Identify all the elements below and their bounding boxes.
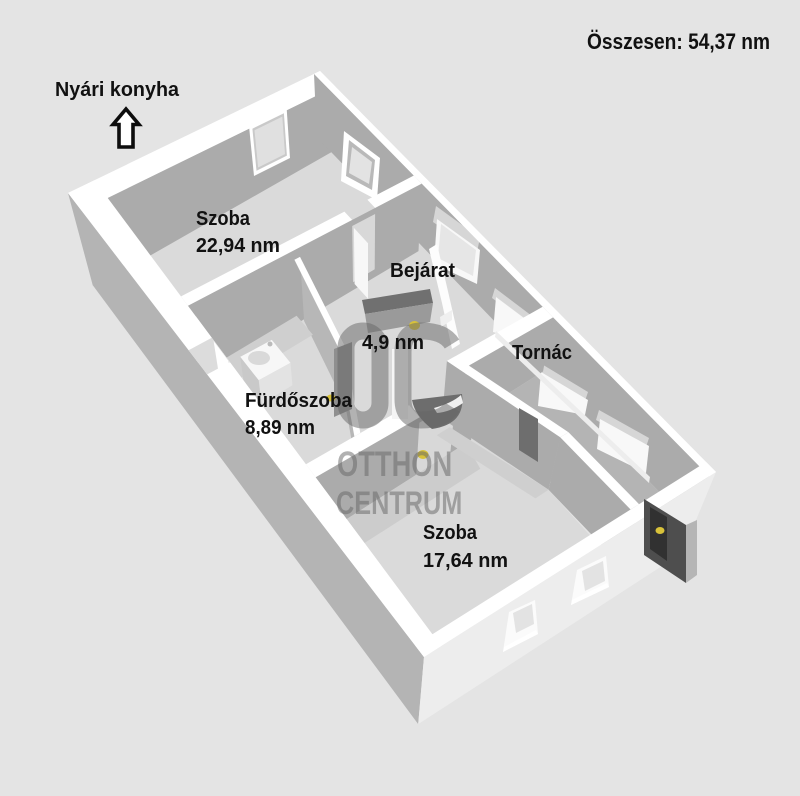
svg-text:OTTHON: OTTHON (337, 445, 452, 484)
svg-text:Bejárat: Bejárat (390, 259, 455, 282)
svg-text:Tornác: Tornác (512, 341, 572, 364)
svg-text:CENTRUM: CENTRUM (336, 486, 462, 522)
svg-text:17,64 nm: 17,64 nm (423, 549, 508, 572)
svg-text:22,94 nm: 22,94 nm (196, 234, 280, 257)
svg-text:Szoba: Szoba (196, 207, 251, 230)
svg-text:Fürdőszoba: Fürdőszoba (245, 389, 353, 412)
svg-text:Nyári konyha: Nyári konyha (55, 78, 180, 101)
svg-text:Összesen: 54,37 nm: Összesen: 54,37 nm (587, 29, 770, 54)
svg-text:4,9 nm: 4,9 nm (362, 331, 424, 354)
svg-text:8,89 nm: 8,89 nm (245, 416, 315, 439)
svg-text:Szoba: Szoba (423, 521, 478, 544)
